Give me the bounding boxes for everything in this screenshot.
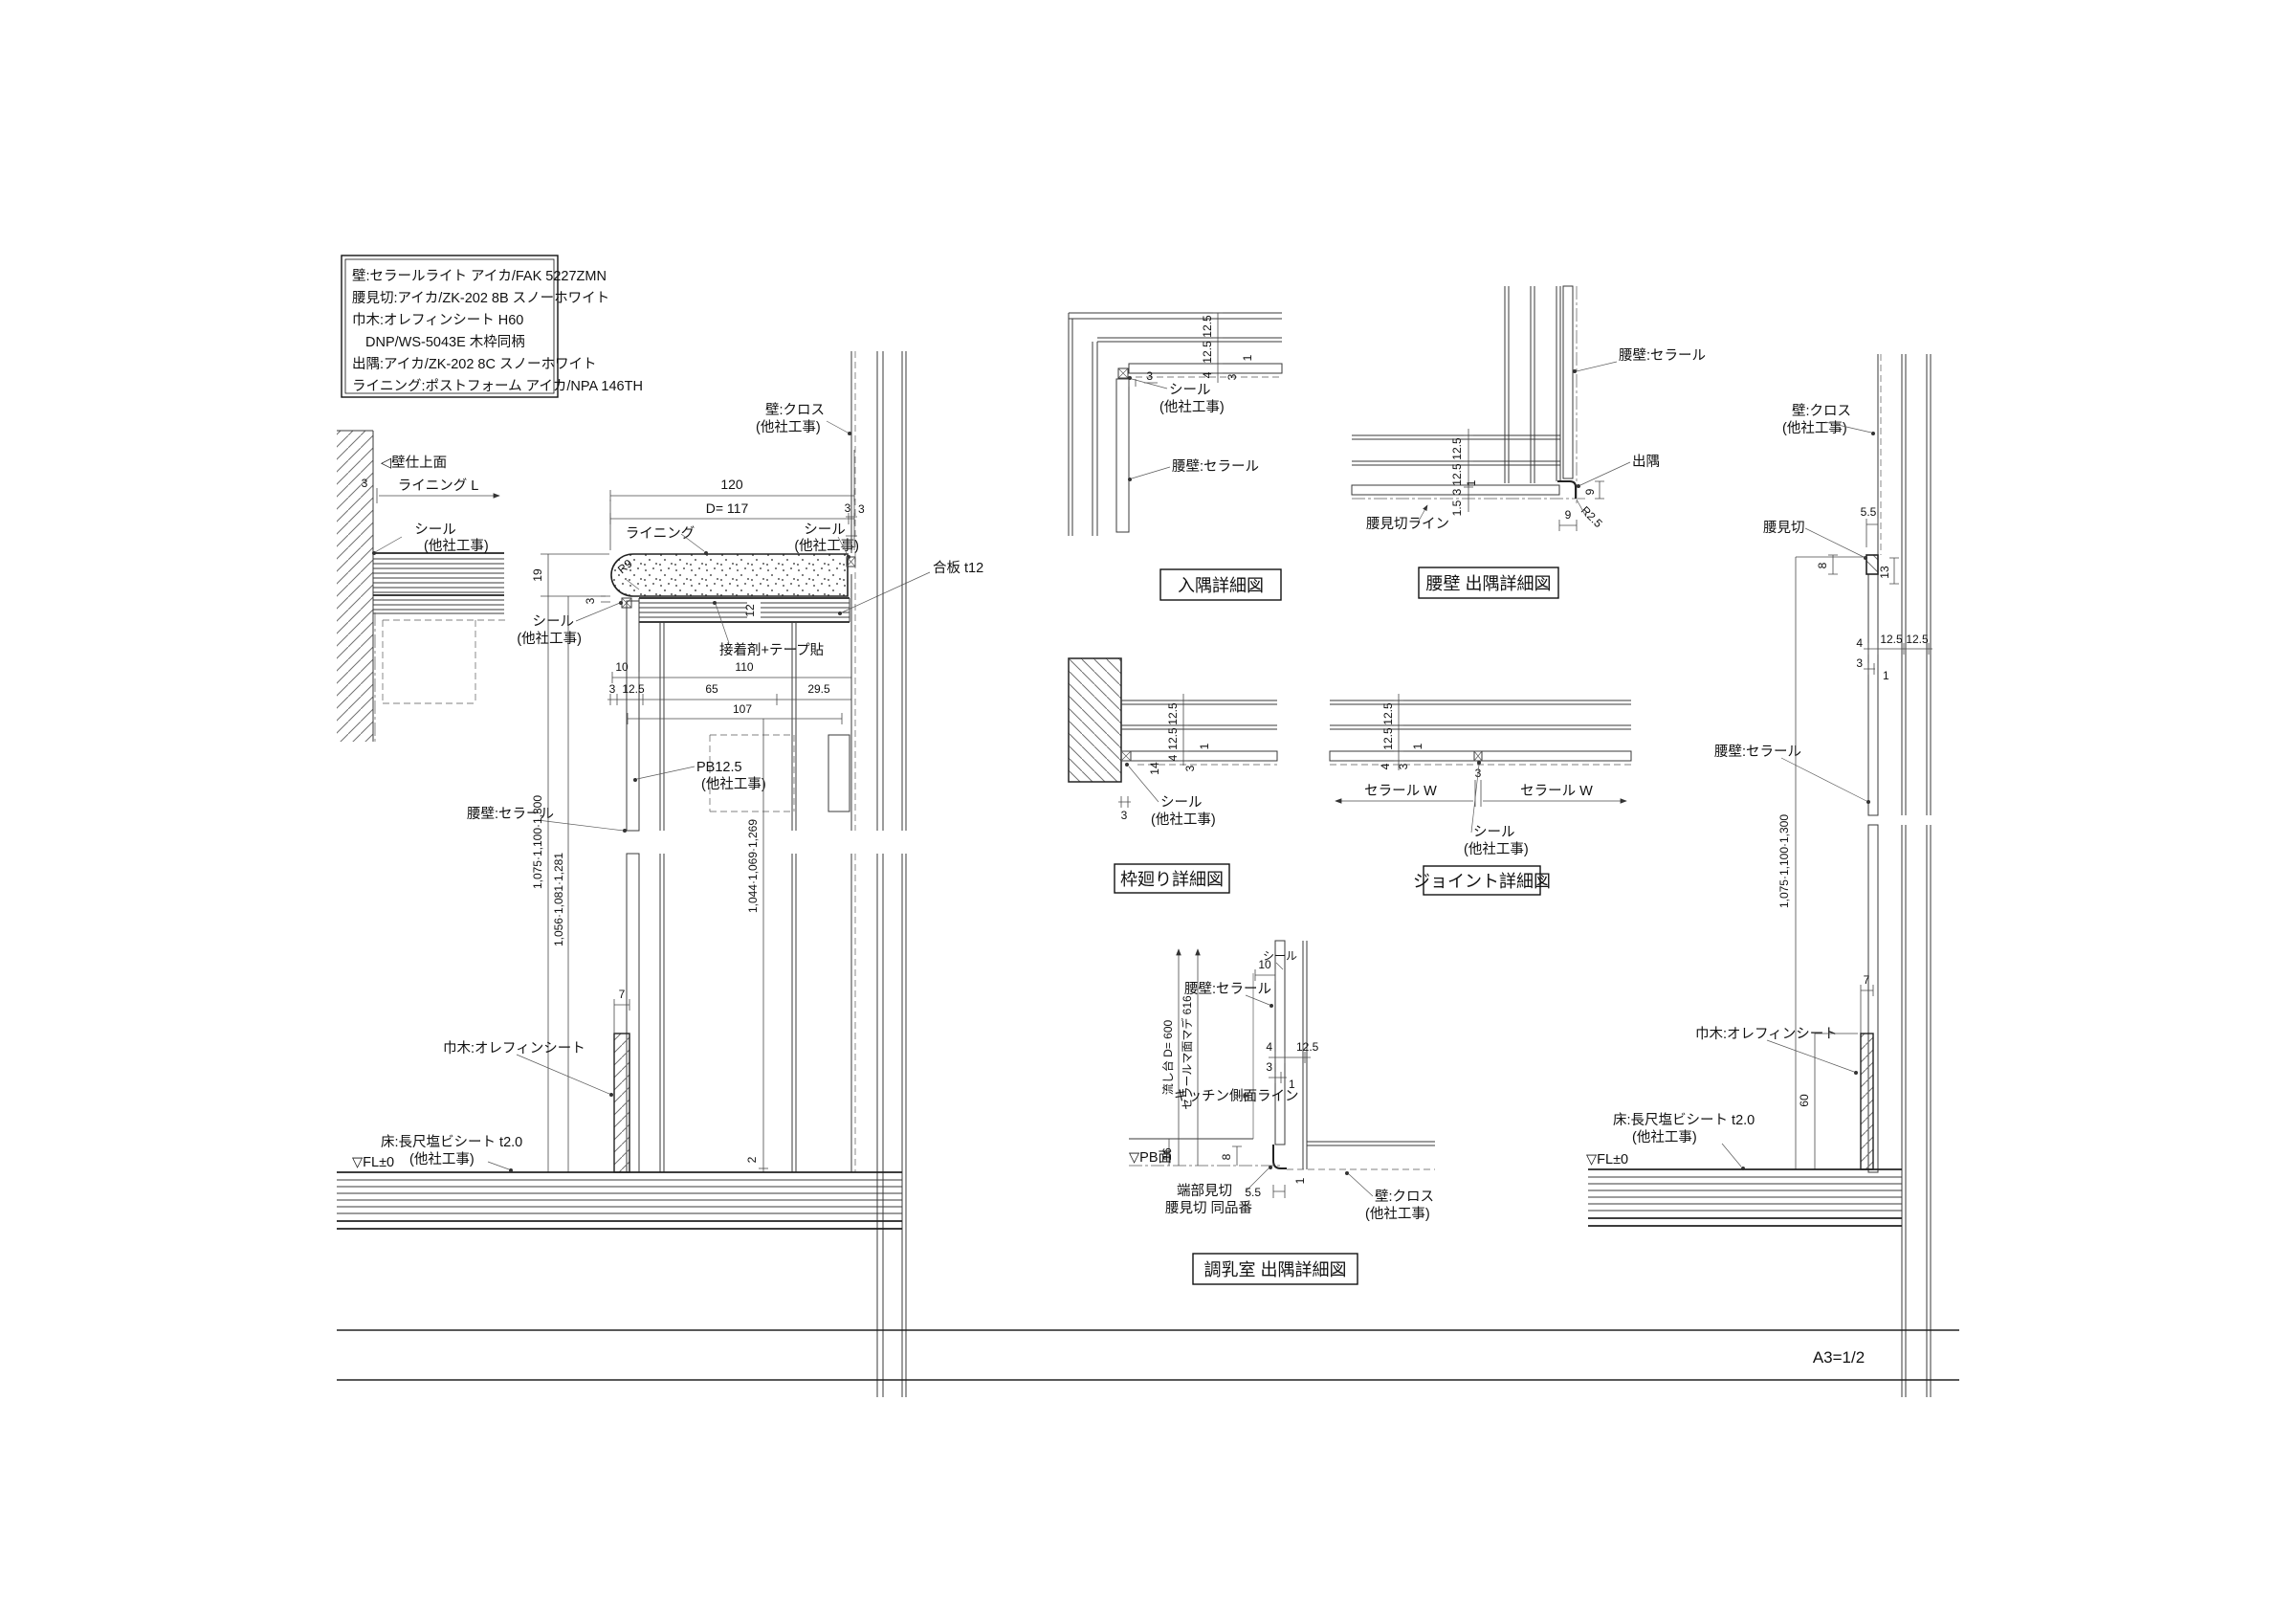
dim-13: 13 bbox=[1878, 566, 1891, 579]
legend-box: 壁:セラールライト アイカ/FAK 5227ZMN 腰見切:アイカ/ZK-202… bbox=[342, 256, 643, 397]
right-wall-section-detail: 壁:クロス (他社工事) 腰見切 5.5 8 13 4 12.5 12.5 3 … bbox=[1586, 354, 1932, 1397]
dim-3-counter: 3 bbox=[584, 597, 597, 604]
wall-cloth-label: 壁:クロス bbox=[1792, 403, 1851, 419]
dim-12-5: 12.5 bbox=[1906, 633, 1929, 646]
milk-room-corner-detail: 流し台 D= 600 セラールマ面マデ 616 シール 10 腰壁:セラール 4… bbox=[1129, 941, 1435, 1284]
blocking bbox=[828, 735, 850, 811]
frame bbox=[1069, 658, 1121, 782]
dim-12-5: 12.5 bbox=[1201, 341, 1214, 364]
kneewall-panel bbox=[1116, 379, 1129, 532]
wall-cloth-by-others-label: (他社工事) bbox=[1782, 420, 1847, 436]
seal-by-others-label: (他社工事) bbox=[517, 631, 582, 647]
seal-label: シール bbox=[414, 522, 456, 538]
sink-depth-label: 流し台 D= 600 bbox=[1160, 1019, 1175, 1095]
kneewall-panel bbox=[627, 601, 639, 831]
seal-by-others-label: (他社工事) bbox=[1151, 811, 1216, 828]
fl-level-label: ▽FL±0 bbox=[352, 1155, 394, 1170]
inside-corner-detail: 12.5 12.5 4 3 1 3 シール (他社工事) 腰壁:セラール 入隅詳… bbox=[1069, 313, 1282, 600]
dim-1: 1 bbox=[1411, 743, 1424, 749]
dim-4: 4 bbox=[1166, 754, 1180, 761]
lining-length-label: ライニング L bbox=[398, 478, 479, 494]
vdim-1075: 1,075·1,100·1,300 bbox=[531, 795, 544, 889]
dim-10: 10 bbox=[1258, 958, 1271, 971]
kneewall-label: 腰壁:セラール bbox=[1184, 981, 1271, 997]
cad-drawing-canvas: 壁:セラールライト アイカ/FAK 5227ZMN 腰見切:アイカ/ZK-202… bbox=[0, 0, 2296, 1623]
dim-5-5: 5.5 bbox=[1861, 505, 1877, 519]
kneewall-panel bbox=[1563, 286, 1573, 478]
vdim-1044: 1,044·1,069·1,269 bbox=[746, 819, 760, 913]
seal-label: シール bbox=[533, 614, 575, 630]
joint-detail: 12.5 12.5 4 3 1 3 セラール W セラール W シール (他社工… bbox=[1330, 694, 1631, 895]
kneewall-label: 腰壁:セラール bbox=[1714, 744, 1801, 760]
floor-by-others-label: (他社工事) bbox=[409, 1151, 475, 1167]
adhesive-label: 接着剤+テープ貼 bbox=[719, 642, 824, 658]
wall-cloth-label: 壁:クロス bbox=[765, 402, 825, 418]
seal-by-others-label: (他社工事) bbox=[794, 538, 859, 554]
postform-counter bbox=[611, 554, 848, 596]
seal-label: シール bbox=[804, 522, 846, 538]
dim-107: 107 bbox=[733, 702, 752, 716]
dim-2: 2 bbox=[745, 1156, 759, 1163]
wall-cloth-label: 壁:クロス bbox=[1375, 1189, 1434, 1205]
detail-title: 調乳室 出隅詳細図 bbox=[1203, 1260, 1346, 1279]
corner-trim bbox=[1557, 481, 1576, 499]
sheet-footer: A3=1/2 bbox=[337, 1330, 1959, 1380]
legend-line-skirting: 巾木:オレフィンシート H60 bbox=[352, 312, 523, 328]
dim-1-5: 1.5 bbox=[1450, 500, 1464, 516]
kneewall-band bbox=[1131, 751, 1277, 761]
dim-10: 10 bbox=[615, 660, 629, 674]
dim-3-wall: 3 bbox=[845, 501, 851, 515]
dim-9: 9 bbox=[1583, 488, 1597, 495]
kneewall-outside-corner-detail: R2.5 出隅 腰壁:セラール 腰見切ライン 12.5 12.5 1 3 1.5… bbox=[1352, 286, 1706, 598]
kitchen-side-line-label: キッチン側面ライン bbox=[1174, 1088, 1299, 1104]
mikiri-label: 腰見切 bbox=[1763, 521, 1805, 536]
dim-3: 3 bbox=[1450, 488, 1464, 495]
dim-8: 8 bbox=[1220, 1153, 1233, 1160]
dim-d117: D= 117 bbox=[706, 500, 749, 516]
seal-by-others-label: (他社工事) bbox=[1464, 841, 1529, 857]
dim-1: 1 bbox=[1241, 354, 1254, 361]
wall-cloth-by-others-label: (他社工事) bbox=[1365, 1206, 1430, 1222]
seal-label: シール bbox=[1160, 795, 1203, 811]
kneewall-band bbox=[1482, 751, 1631, 761]
dim-1: 1 bbox=[1198, 743, 1211, 749]
dim-12-5: 12.5 bbox=[1166, 727, 1180, 750]
dim-8: 8 bbox=[1816, 562, 1829, 568]
r2-5-label: R2.5 bbox=[1578, 503, 1605, 530]
dim-7: 7 bbox=[619, 988, 626, 1001]
same-item-label: 腰見切 同品番 bbox=[1165, 1200, 1253, 1216]
vdim-1075: 1,075·1,100·1,300 bbox=[1777, 814, 1791, 908]
dim-12-5: 12.5 bbox=[1296, 1040, 1319, 1054]
dim-1: 1 bbox=[1293, 1177, 1307, 1184]
dim-3-right: 3 bbox=[858, 502, 865, 516]
dim-60: 60 bbox=[1798, 1094, 1811, 1107]
dim-3: 3 bbox=[1183, 765, 1197, 771]
dim-12-5: 12.5 bbox=[1450, 463, 1464, 486]
dim-120: 120 bbox=[720, 477, 743, 492]
dim-12-5: 12.5 bbox=[1450, 437, 1464, 460]
dim-12: 12 bbox=[743, 604, 757, 617]
dim-12-5: 12.5 bbox=[622, 682, 645, 696]
mikiri-line-label: 腰見切ライン bbox=[1366, 517, 1449, 532]
dim-1: 1 bbox=[1465, 479, 1478, 486]
dim-3: 3 bbox=[1225, 373, 1239, 380]
dim-19: 19 bbox=[531, 568, 544, 582]
dim-12-5: 12.5 bbox=[1166, 702, 1180, 725]
skirting-board bbox=[1861, 1034, 1873, 1169]
kneewall-panel bbox=[1275, 941, 1285, 1145]
main-section-detail: ◁壁仕上面 3 ライニング L シール (他社工事) R9 19 3 シール (… bbox=[337, 351, 983, 1397]
end-trim bbox=[1273, 1145, 1287, 1168]
kneewall-panel bbox=[1868, 574, 1878, 815]
skirting-label: 巾木:オレフィンシート bbox=[443, 1040, 585, 1056]
dim-110: 110 bbox=[735, 660, 753, 674]
wall-cloth-by-others-label: (他社工事) bbox=[756, 419, 821, 435]
scale-note: A3=1/2 bbox=[1813, 1348, 1865, 1367]
legend-line-dnp: DNP/WS-5043E 木枠同柄 bbox=[365, 334, 525, 350]
dim-14: 14 bbox=[1148, 762, 1161, 775]
pb-label: PB12.5 bbox=[696, 760, 742, 775]
ceral-width-label: セラール W bbox=[1520, 784, 1593, 799]
legend-line-mikiri: 腰見切:アイカ/ZK-202 8B スノーホワイト bbox=[352, 291, 609, 306]
fl-level-label: ▽FL±0 bbox=[1586, 1152, 1628, 1167]
dim-3-seal: 3 bbox=[1146, 369, 1153, 383]
mikiri-trim bbox=[1866, 555, 1878, 574]
dim-1: 1 bbox=[1883, 669, 1889, 682]
dim-29-5: 29.5 bbox=[807, 682, 830, 696]
dim-9: 9 bbox=[1565, 508, 1572, 522]
end-trim-label: 端部見切 bbox=[1177, 1183, 1232, 1199]
dim-3: 3 bbox=[1397, 763, 1410, 769]
dim-12-5: 12.5 bbox=[1880, 633, 1903, 646]
corner-label: 出隅 bbox=[1632, 454, 1660, 470]
seal-by-others-label: (他社工事) bbox=[1159, 399, 1225, 415]
vdim-1056: 1,056·1,081·1,281 bbox=[552, 853, 565, 946]
dim-7: 7 bbox=[1864, 973, 1870, 987]
footer-rules bbox=[337, 1330, 1959, 1380]
dim-12-5: 12.5 bbox=[1201, 315, 1214, 338]
ceral-width-label: セラール W bbox=[1364, 784, 1437, 799]
pb-face-label: ▽PB面 bbox=[1129, 1150, 1172, 1166]
legend-line-desumi: 出隅:アイカ/ZK-202 8C スノーホワイト bbox=[352, 356, 596, 372]
dim-3-row: 3 bbox=[609, 682, 616, 696]
dim-4: 4 bbox=[1201, 371, 1214, 378]
dim-12-5: 12.5 bbox=[1381, 702, 1395, 725]
detail-title: 枠廻り詳細図 bbox=[1120, 870, 1224, 889]
kneewall-band bbox=[1330, 751, 1474, 761]
wall-finish-face-label: ◁壁仕上面 bbox=[380, 455, 447, 471]
frame-surround-detail: 12.5 12.5 4 14 3 1 3 シール (他社工事) 枠廻り詳細図 bbox=[1069, 658, 1277, 893]
dim-3: 3 bbox=[1266, 1060, 1272, 1074]
floor-by-others-label: (他社工事) bbox=[1632, 1129, 1697, 1145]
legend-line-wall: 壁:セラールライト アイカ/FAK 5227ZMN bbox=[352, 268, 607, 284]
plywood-label: 合板 t12 bbox=[933, 559, 983, 576]
skirting-board bbox=[614, 1034, 629, 1172]
dim-3: 3 bbox=[1856, 656, 1863, 670]
skirting-label: 巾木:オレフィンシート bbox=[1695, 1026, 1838, 1042]
dim-4: 4 bbox=[1379, 763, 1392, 769]
detail-title: 腰壁 出隅詳細図 bbox=[1425, 574, 1551, 593]
kneewall-label: 腰壁:セラール bbox=[1172, 458, 1259, 475]
dim-3: 3 bbox=[362, 477, 368, 490]
seal-label: シール bbox=[1169, 383, 1211, 398]
detail-title: ジョイント詳細図 bbox=[1413, 872, 1551, 891]
lining-label: ライニング bbox=[626, 525, 695, 542]
dim-4: 4 bbox=[1856, 636, 1863, 650]
pb-by-others-label: (他社工事) bbox=[701, 776, 766, 792]
kneewall-label: 腰壁:セラール bbox=[1619, 347, 1706, 364]
dim-3-seal: 3 bbox=[1121, 809, 1128, 822]
drawing-sheet: 壁:セラールライト アイカ/FAK 5227ZMN 腰見切:アイカ/ZK-202… bbox=[0, 0, 2296, 1623]
dim-12-5: 12.5 bbox=[1381, 727, 1395, 750]
floor-label: 床:長尺塩ビシート t2.0 bbox=[1613, 1112, 1755, 1128]
dim-5-5: 5.5 bbox=[1245, 1186, 1261, 1199]
seal-by-others-label: (他社工事) bbox=[424, 538, 489, 554]
floor-label: 床:長尺塩ビシート t2.0 bbox=[381, 1134, 522, 1150]
seal-label: シール bbox=[1473, 825, 1515, 840]
dim-4: 4 bbox=[1266, 1040, 1272, 1054]
dim-65: 65 bbox=[705, 682, 718, 696]
legend-line-lining: ライニング:ポストフォーム アイカ/NPA 146TH bbox=[352, 378, 643, 394]
detail-title: 入隅詳細図 bbox=[1178, 576, 1264, 595]
